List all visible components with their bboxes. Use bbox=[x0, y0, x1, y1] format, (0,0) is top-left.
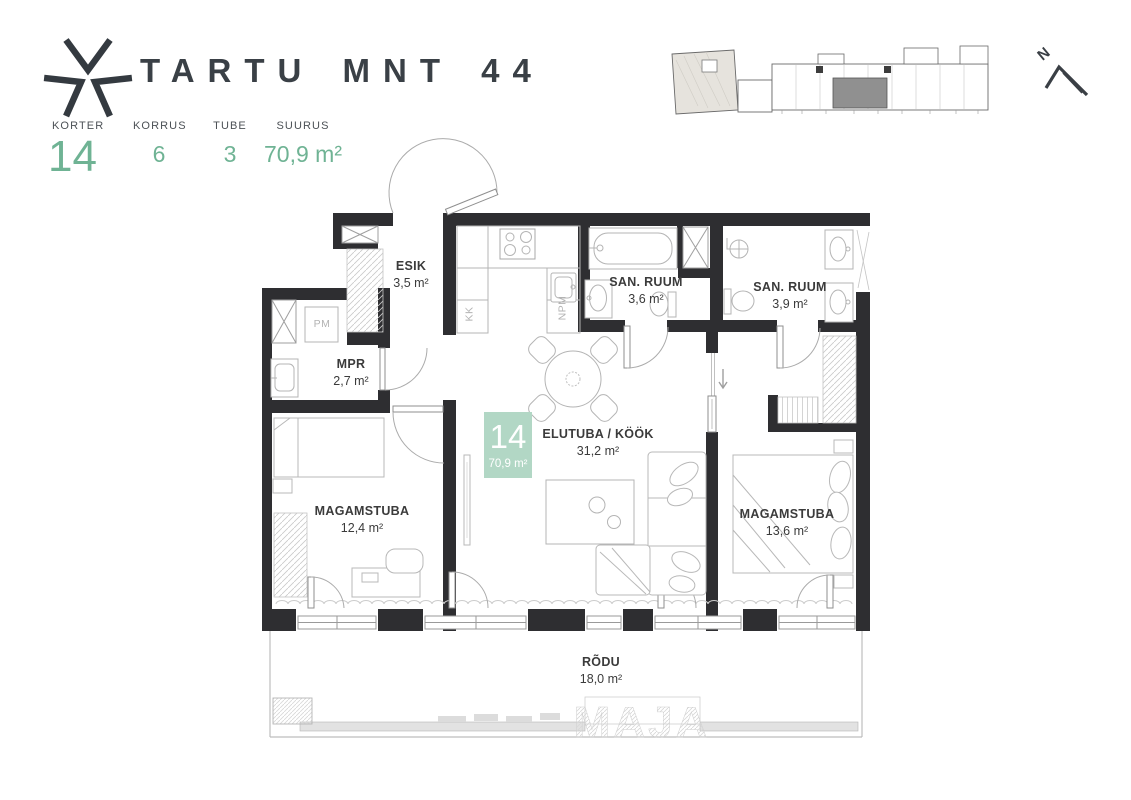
label-washing-machine: PM bbox=[313, 318, 331, 330]
chair bbox=[386, 549, 423, 573]
railing bbox=[300, 722, 585, 731]
room-label-san1: SAN. RUUM 3,6 m² bbox=[571, 274, 721, 307]
window bbox=[587, 616, 621, 629]
balcony: MAJA bbox=[270, 631, 862, 747]
room-label-magamistuba1: MAGAMSTUBA 12,4 m² bbox=[287, 503, 437, 536]
highlighted-unit bbox=[833, 78, 887, 108]
nightstand bbox=[273, 479, 292, 493]
kitchen-island bbox=[546, 480, 634, 544]
bed bbox=[274, 418, 384, 477]
window bbox=[425, 616, 526, 629]
room-label-mpr: MPR 2,7 m² bbox=[276, 356, 426, 389]
bedroom2-wardrobe bbox=[823, 336, 856, 423]
room-label-elutuba: ELUTUBA / KÖÖK 31,2 m² bbox=[523, 426, 673, 459]
arrow-down-icon bbox=[719, 369, 727, 388]
room-label-magamistuba2: MAGAMSTUBA 13,6 m² bbox=[712, 506, 862, 539]
unit-badge-number: 14 bbox=[490, 420, 527, 454]
floorplan-sheet: TARTU MNT 44 KORTER 14 KORRUS 6 TUBE 3 S… bbox=[0, 0, 1131, 800]
north-arrow-icon: N bbox=[1034, 44, 1087, 95]
shaft-icon bbox=[683, 227, 708, 268]
room-label-esik: ESIK 3,5 m² bbox=[336, 258, 486, 291]
curtain-line bbox=[276, 601, 852, 604]
window bbox=[779, 616, 855, 629]
nightstand bbox=[834, 440, 853, 453]
unit-badge-area: 70,9 m² bbox=[489, 458, 528, 470]
railing bbox=[700, 722, 858, 731]
label-dishwasher: NPM bbox=[556, 296, 568, 321]
sink bbox=[825, 230, 853, 269]
room-label-rodu: RÕDU 18,0 m² bbox=[526, 654, 676, 687]
building-key-plan bbox=[672, 46, 988, 114]
dining-table bbox=[545, 351, 601, 407]
bedroom2-shelves bbox=[778, 397, 818, 423]
chaise bbox=[596, 545, 650, 595]
balcony-box bbox=[273, 698, 312, 724]
watermark-text: MAJA bbox=[574, 698, 711, 747]
window bbox=[655, 616, 741, 629]
shaft-icon bbox=[342, 226, 378, 243]
label-fridge: KK bbox=[464, 306, 476, 321]
entrance-door-leaf bbox=[446, 189, 498, 215]
shaft-icon bbox=[272, 300, 296, 343]
nightstand bbox=[834, 575, 853, 588]
north-letter: N bbox=[1034, 44, 1053, 64]
window bbox=[298, 616, 376, 629]
room-label-san2: SAN. RUUM 3,9 m² bbox=[715, 279, 865, 312]
